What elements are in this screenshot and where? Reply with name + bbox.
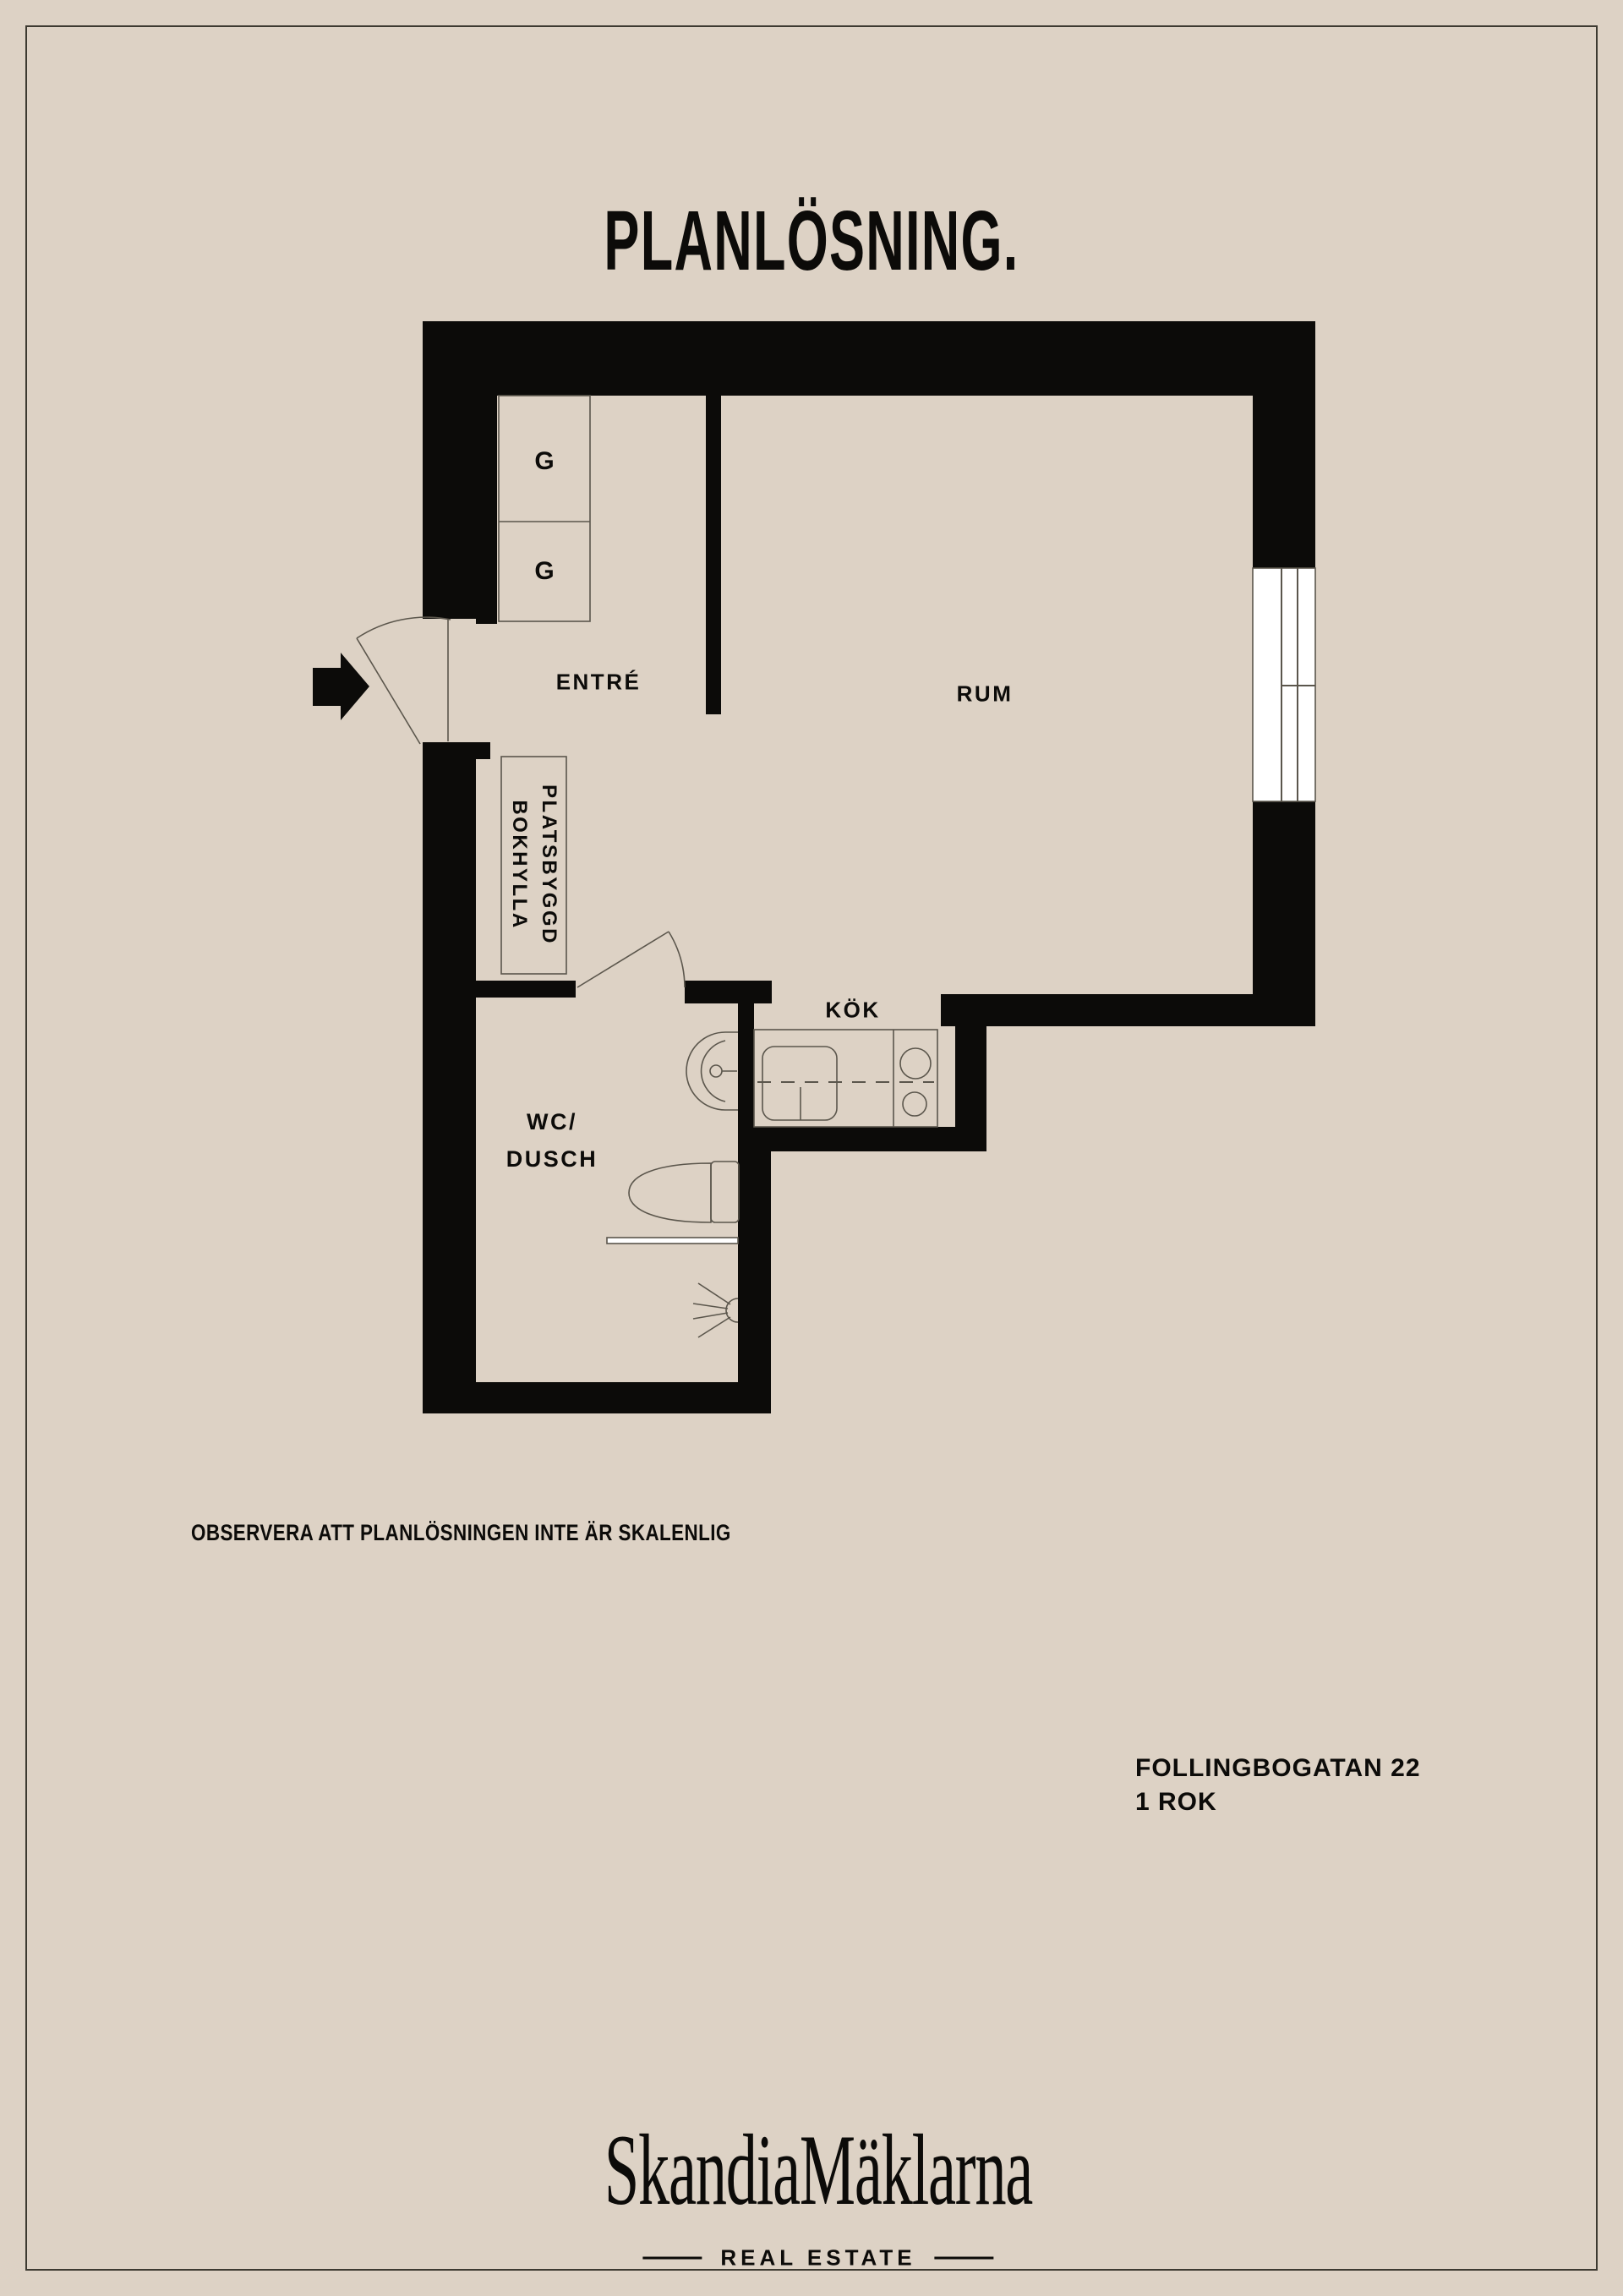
- shower-spray-3: [693, 1313, 728, 1319]
- tagline-rule-left: [642, 2257, 702, 2260]
- shower-head-icon: [693, 1283, 738, 1337]
- entry-door-swing-arc: [357, 617, 451, 638]
- floor-plan-drawing: [0, 0, 1623, 2296]
- bookshelf-label: PLATSBYGGD BOKHYLLA: [505, 784, 564, 945]
- shower-spray-2: [693, 1304, 728, 1309]
- wardrobe-outline: [499, 396, 590, 621]
- wc-sink-faucet-knob: [710, 1065, 722, 1077]
- wall-wc-right-thin: [738, 998, 754, 1127]
- tagline-rule-right: [935, 2257, 994, 2260]
- bookshelf-label-line1: PLATSBYGGD: [534, 784, 564, 945]
- kitchen-counter: [754, 1030, 937, 1127]
- entry-door-leaf: [357, 638, 420, 744]
- bookshelf-label-line2: BOKHYLLA: [505, 784, 534, 945]
- property-address-block: FOLLINGBOGATAN 22 1 ROK: [1135, 1752, 1421, 1819]
- wc-door-leaf: [577, 932, 669, 987]
- shower-spray-1: [698, 1283, 730, 1304]
- address-line-2: 1 ROK: [1135, 1785, 1421, 1819]
- wc-label-line2: DUSCH: [506, 1140, 598, 1178]
- window: [1253, 568, 1315, 801]
- wall-left-upper-step: [476, 617, 497, 624]
- wc-label-line1: WC/: [506, 1103, 598, 1140]
- brand-tagline-row: REAL ESTATE: [642, 2245, 993, 2271]
- wall-kitchen-bottom: [738, 1127, 986, 1151]
- stove-burner-large: [900, 1048, 931, 1079]
- closet-label-top: G: [534, 447, 554, 476]
- wc-door-swing-arc: [669, 932, 685, 987]
- wall-wc-top-left: [423, 981, 576, 998]
- floorplan-page: PLANLÖSNING.: [0, 0, 1623, 2296]
- kitchen-sink: [762, 1047, 837, 1120]
- entry-door: [357, 617, 451, 744]
- wc-door: [577, 932, 685, 987]
- wardrobes: [499, 396, 590, 621]
- wall-left-lower-step: [476, 742, 490, 759]
- wc-fixtures: [607, 1032, 739, 1337]
- wall-wc-right-thick: [738, 1127, 771, 1413]
- closet-label-bottom: G: [534, 557, 554, 586]
- wall-left-upper: [423, 321, 497, 619]
- toilet-tank: [711, 1162, 739, 1222]
- entry-arrow-icon: [313, 653, 369, 720]
- stove-burner-small: [903, 1092, 926, 1116]
- wall-top: [423, 321, 1315, 396]
- room-label-entre: ENTRÉ: [556, 670, 642, 696]
- shower-screen: [607, 1238, 738, 1244]
- room-label-kok: KÖK: [825, 998, 880, 1024]
- address-line-1: FOLLINGBOGATAN 22: [1135, 1752, 1421, 1785]
- wall-rum-bottom: [941, 994, 1315, 1026]
- shower-spray-4: [698, 1317, 730, 1337]
- scale-disclaimer-note: OBSERVERA ATT PLANLÖSNINGEN INTE ÄR SKAL…: [191, 1520, 731, 1546]
- room-label-rum: RUM: [957, 681, 1014, 708]
- wall-partition-entre-rum: [706, 396, 721, 714]
- wall-wc-bottom: [423, 1382, 771, 1413]
- brand-tagline: REAL ESTATE: [720, 2245, 915, 2271]
- wall-wc-top-right: [685, 981, 772, 1003]
- wall-left-lower: [423, 742, 476, 1413]
- brand-logo: SkandiaMäklarna: [604, 2124, 1032, 2217]
- room-label-wc-dusch: WC/ DUSCH: [506, 1103, 598, 1178]
- toilet-bowl: [629, 1163, 711, 1222]
